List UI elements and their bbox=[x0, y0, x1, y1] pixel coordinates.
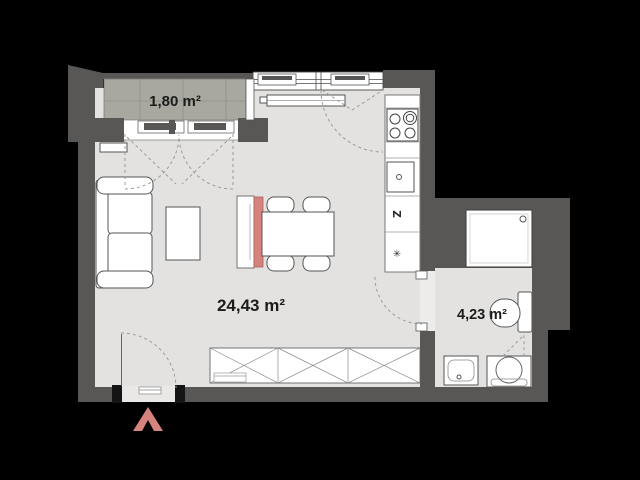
wardrobe bbox=[210, 348, 420, 383]
kitchen-sink-icon bbox=[387, 162, 414, 192]
sofa bbox=[96, 177, 153, 288]
window-corner-post bbox=[246, 79, 254, 120]
washbasin bbox=[444, 356, 478, 385]
stove-icon bbox=[387, 109, 418, 141]
dining-table bbox=[262, 212, 334, 256]
radiator-left-wall bbox=[100, 143, 127, 152]
entrance-jamb-left bbox=[112, 385, 122, 403]
chair bbox=[303, 197, 330, 213]
window-sill-right bbox=[331, 74, 369, 85]
washing-machine bbox=[487, 356, 531, 387]
living-room-area-label: 24,43 m² bbox=[217, 296, 285, 315]
balcony-door-jamb-left bbox=[95, 118, 124, 142]
appliance-z-label: Z bbox=[390, 210, 402, 218]
chair bbox=[267, 255, 294, 271]
wall-bathroom-right-upper bbox=[532, 268, 570, 330]
wall-kitchen-bathroom-upper bbox=[420, 97, 435, 271]
balcony-parapet bbox=[103, 73, 254, 79]
chair bbox=[267, 197, 294, 213]
window-sill-left bbox=[258, 74, 296, 85]
wall-left bbox=[78, 140, 95, 402]
fridge-snowflake-icon: ✳ bbox=[393, 249, 401, 260]
tv-unit bbox=[237, 196, 263, 268]
entrance-arrow-icon bbox=[133, 407, 163, 431]
balcony-door bbox=[95, 118, 268, 142]
bathroom-area-label: 4,23 m² bbox=[457, 307, 507, 323]
balcony-area-label: 1,80 m² bbox=[149, 93, 201, 110]
floor-plan-drawing: Z ✳ bbox=[0, 0, 640, 480]
entrance-jamb-right bbox=[175, 385, 185, 403]
balcony-door-jamb-right bbox=[238, 118, 268, 142]
shower-tray bbox=[466, 210, 532, 267]
chair bbox=[303, 255, 330, 271]
floor-plan: Z ✳ bbox=[0, 0, 640, 480]
coffee-table bbox=[166, 207, 200, 260]
kitchen-counter: Z ✳ bbox=[385, 95, 420, 272]
